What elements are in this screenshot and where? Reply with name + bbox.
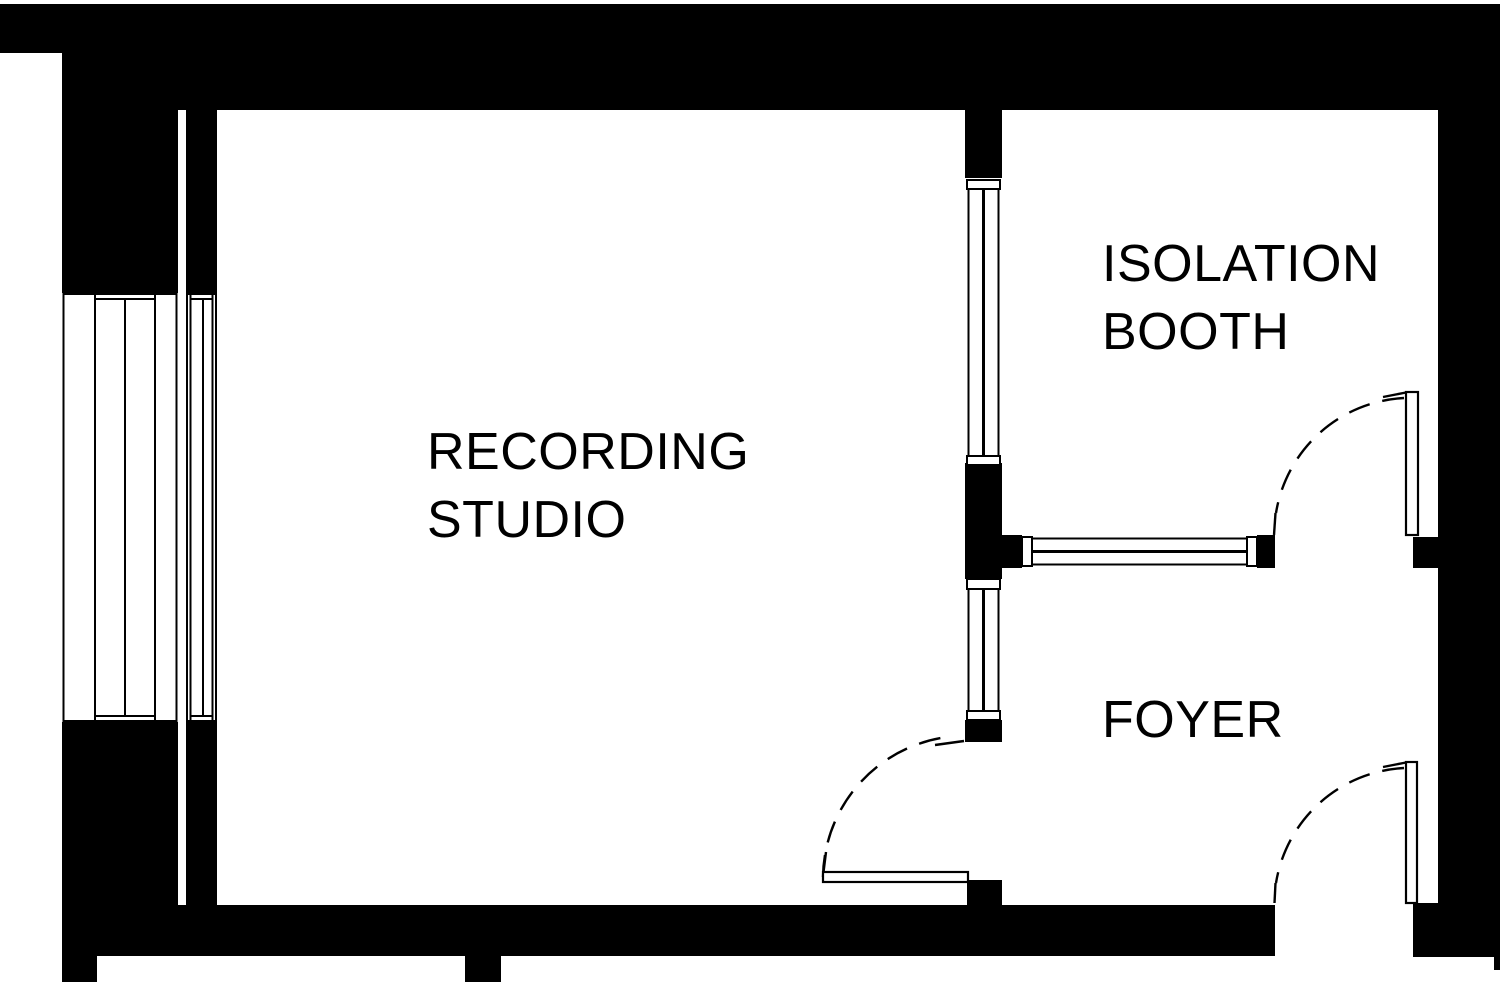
bottom-wall-foot-left — [62, 956, 97, 982]
center-wall-post-lower — [965, 720, 1002, 742]
isolation-booth-label-line1: ISOLATION — [1102, 230, 1380, 298]
window-sill — [967, 711, 1000, 720]
studio-door-hinge-post — [967, 880, 1002, 905]
top-wall — [62, 4, 1500, 110]
window-jamb — [1022, 537, 1032, 566]
recording-studio-label-line1: RECORDING — [427, 418, 749, 486]
booth-door-hinge-pier — [1413, 537, 1438, 568]
bottom-right-foot — [1494, 956, 1500, 970]
recording-studio-label: RECORDING STUDIO — [427, 418, 749, 554]
foyer-exterior-door — [1275, 762, 1418, 903]
left-outer-wall-lower — [62, 722, 178, 907]
walls — [0, 4, 1500, 982]
center-wall-post-middle — [965, 463, 1002, 579]
door-swing-end — [1383, 393, 1406, 398]
left-inner-wall-upper — [186, 108, 217, 293]
door-leaf — [1406, 762, 1417, 903]
window-frame — [64, 294, 177, 721]
right-wall — [1438, 108, 1500, 903]
door-swing-end — [1275, 883, 1276, 903]
center-wall-east-pier — [1002, 535, 1022, 568]
door-swing-end — [1274, 513, 1276, 535]
studio-booth-window — [967, 180, 1000, 465]
center-wall-post-top — [965, 108, 1002, 178]
foyer-label: FOYER — [1102, 686, 1284, 754]
window-jamb — [1247, 537, 1257, 566]
bottom-right-corner — [1413, 903, 1500, 957]
floor-plan: RECORDING STUDIO ISOLATION BOOTH FOYER — [0, 0, 1500, 987]
floor-plan-drawing — [0, 0, 1500, 987]
studio-foyer-door — [823, 738, 968, 882]
studio-foyer-window — [967, 579, 1000, 720]
isolation-booth-door — [1274, 392, 1418, 535]
booth-wall-east-post — [1257, 535, 1275, 568]
door-swing-arc — [823, 738, 941, 877]
door-leaf — [823, 872, 968, 882]
left-wall-inner-window — [187, 294, 216, 721]
bottom-wall — [62, 905, 1275, 956]
window-sill — [967, 579, 1000, 589]
isolation-booth-label-line2: BOOTH — [1102, 298, 1380, 366]
door-swing-end — [1383, 763, 1406, 768]
left-inner-wall-lower — [186, 722, 217, 907]
left-wall-outer-window — [64, 294, 177, 721]
door-leaf — [1406, 392, 1418, 535]
door-swing-arc — [1276, 768, 1404, 883]
door-swing-end — [935, 741, 964, 745]
foyer-label-line1: FOYER — [1102, 686, 1284, 754]
booth-foyer-window — [1022, 537, 1257, 566]
recording-studio-label-line2: STUDIO — [427, 486, 749, 554]
top-wall-cap — [0, 4, 62, 53]
window-sill — [967, 456, 1000, 465]
window-sill — [967, 180, 1000, 189]
left-outer-wall-upper — [62, 108, 178, 293]
isolation-booth-label: ISOLATION BOOTH — [1102, 230, 1380, 366]
door-swing-arc — [1276, 398, 1404, 513]
bottom-wall-foot-middle — [465, 956, 501, 982]
